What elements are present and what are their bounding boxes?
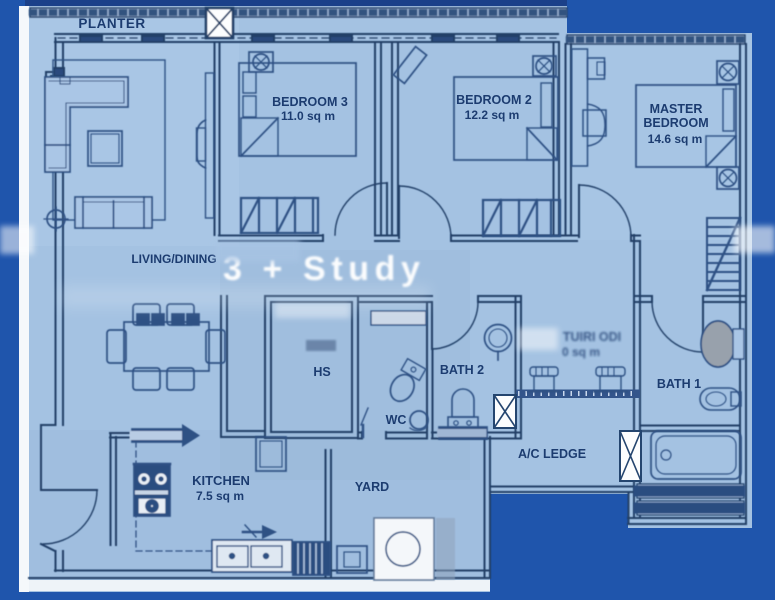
svg-text:LIVING/DINING: LIVING/DINING (131, 252, 216, 266)
svg-text:BEDROOM 3: BEDROOM 3 (272, 95, 348, 109)
svg-text:MASTER: MASTER (650, 102, 703, 116)
svg-text:BEDROOM 2: BEDROOM 2 (456, 93, 532, 107)
svg-text:PLANTER: PLANTER (78, 16, 145, 31)
svg-text:0 sq m: 0 sq m (562, 345, 600, 359)
svg-text:KITCHEN: KITCHEN (192, 473, 250, 488)
svg-text:YARD: YARD (355, 480, 389, 494)
svg-text:A/C LEDGE: A/C LEDGE (518, 447, 586, 461)
svg-text:TUIRI ODI: TUIRI ODI (563, 330, 621, 344)
svg-text:14.6 sq m: 14.6 sq m (648, 132, 703, 146)
svg-text:BEDROOM: BEDROOM (643, 116, 708, 130)
svg-text:BATH 1: BATH 1 (657, 377, 701, 391)
svg-text:7.5 sq m: 7.5 sq m (196, 489, 244, 503)
svg-text:WC: WC (386, 413, 407, 427)
svg-text:HS: HS (313, 365, 330, 379)
svg-text:11.0 sq m: 11.0 sq m (281, 109, 335, 123)
svg-text:BATH 2: BATH 2 (440, 363, 484, 377)
svg-text:12.2 sq m: 12.2 sq m (465, 108, 520, 122)
